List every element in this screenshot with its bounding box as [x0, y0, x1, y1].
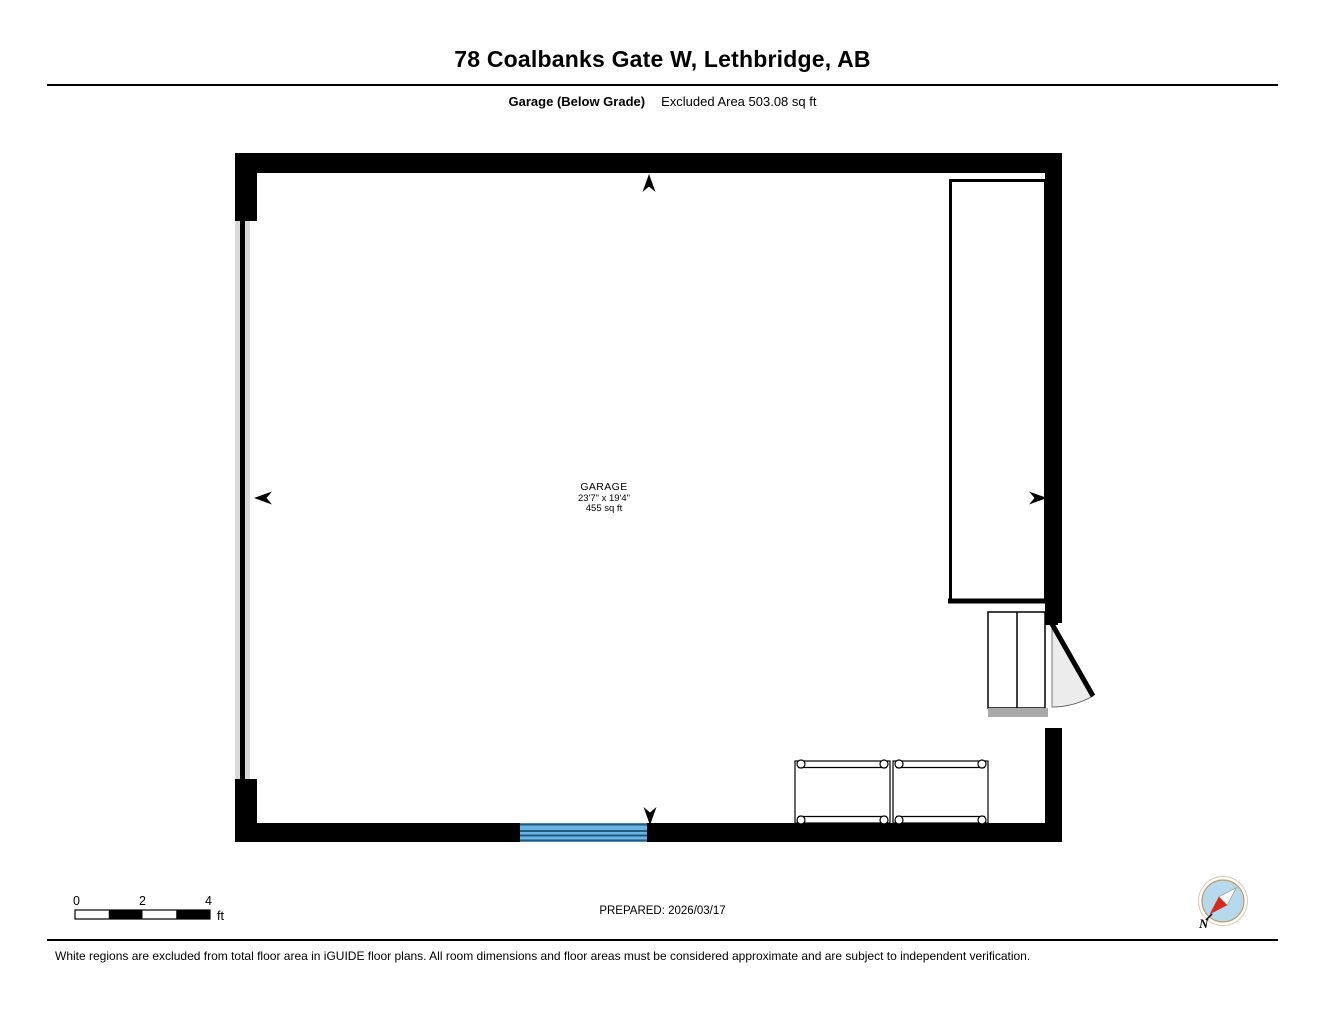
table-2 [893, 760, 988, 824]
floor-plan: GARAGE 23'7" x 19'4" 455 sq ft [230, 148, 1110, 852]
north-label: N [1198, 916, 1209, 931]
foundation-wall-left-line [240, 221, 245, 779]
direction-arrow-bottom-icon [644, 807, 657, 825]
stair-landing-edge [988, 708, 1048, 717]
floor-label: Garage (Below Grade) [509, 94, 646, 109]
door-jamb [1045, 612, 1058, 625]
excluded-area-label: Excluded Area 503.08 sq ft [661, 94, 816, 109]
wall-right-upper [1045, 153, 1062, 623]
direction-arrow-left-icon [254, 492, 272, 505]
footer-divider [47, 939, 1278, 941]
prepared-label: PREPARED: 2026/03/17 [0, 905, 1325, 917]
excluded-region [951, 181, 1046, 601]
room-label: GARAGE 23'7" x 19'4" 455 sq ft [578, 481, 630, 514]
compass: N [1196, 874, 1252, 932]
header-divider [47, 84, 1278, 86]
wall-bottom [235, 823, 1062, 842]
room-name: GARAGE [580, 481, 627, 493]
floorplan-page: 78 Coalbanks Gate W, Lethbridge, AB Gara… [0, 0, 1325, 1024]
page-title: 78 Coalbanks Gate W, Lethbridge, AB [0, 46, 1325, 73]
wall-left-upper [235, 153, 257, 221]
wall-right-lower [1045, 728, 1062, 842]
room-area: 455 sq ft [586, 503, 623, 514]
direction-arrow-top-icon [643, 174, 656, 192]
table-1 [795, 760, 890, 824]
wall-top [235, 153, 1062, 173]
disclaimer-text: White regions are excluded from total fl… [55, 949, 1285, 963]
floor-subtitle: Garage (Below Grade)Excluded Area 503.08… [0, 94, 1325, 109]
window [520, 823, 647, 842]
door [1045, 612, 1093, 707]
